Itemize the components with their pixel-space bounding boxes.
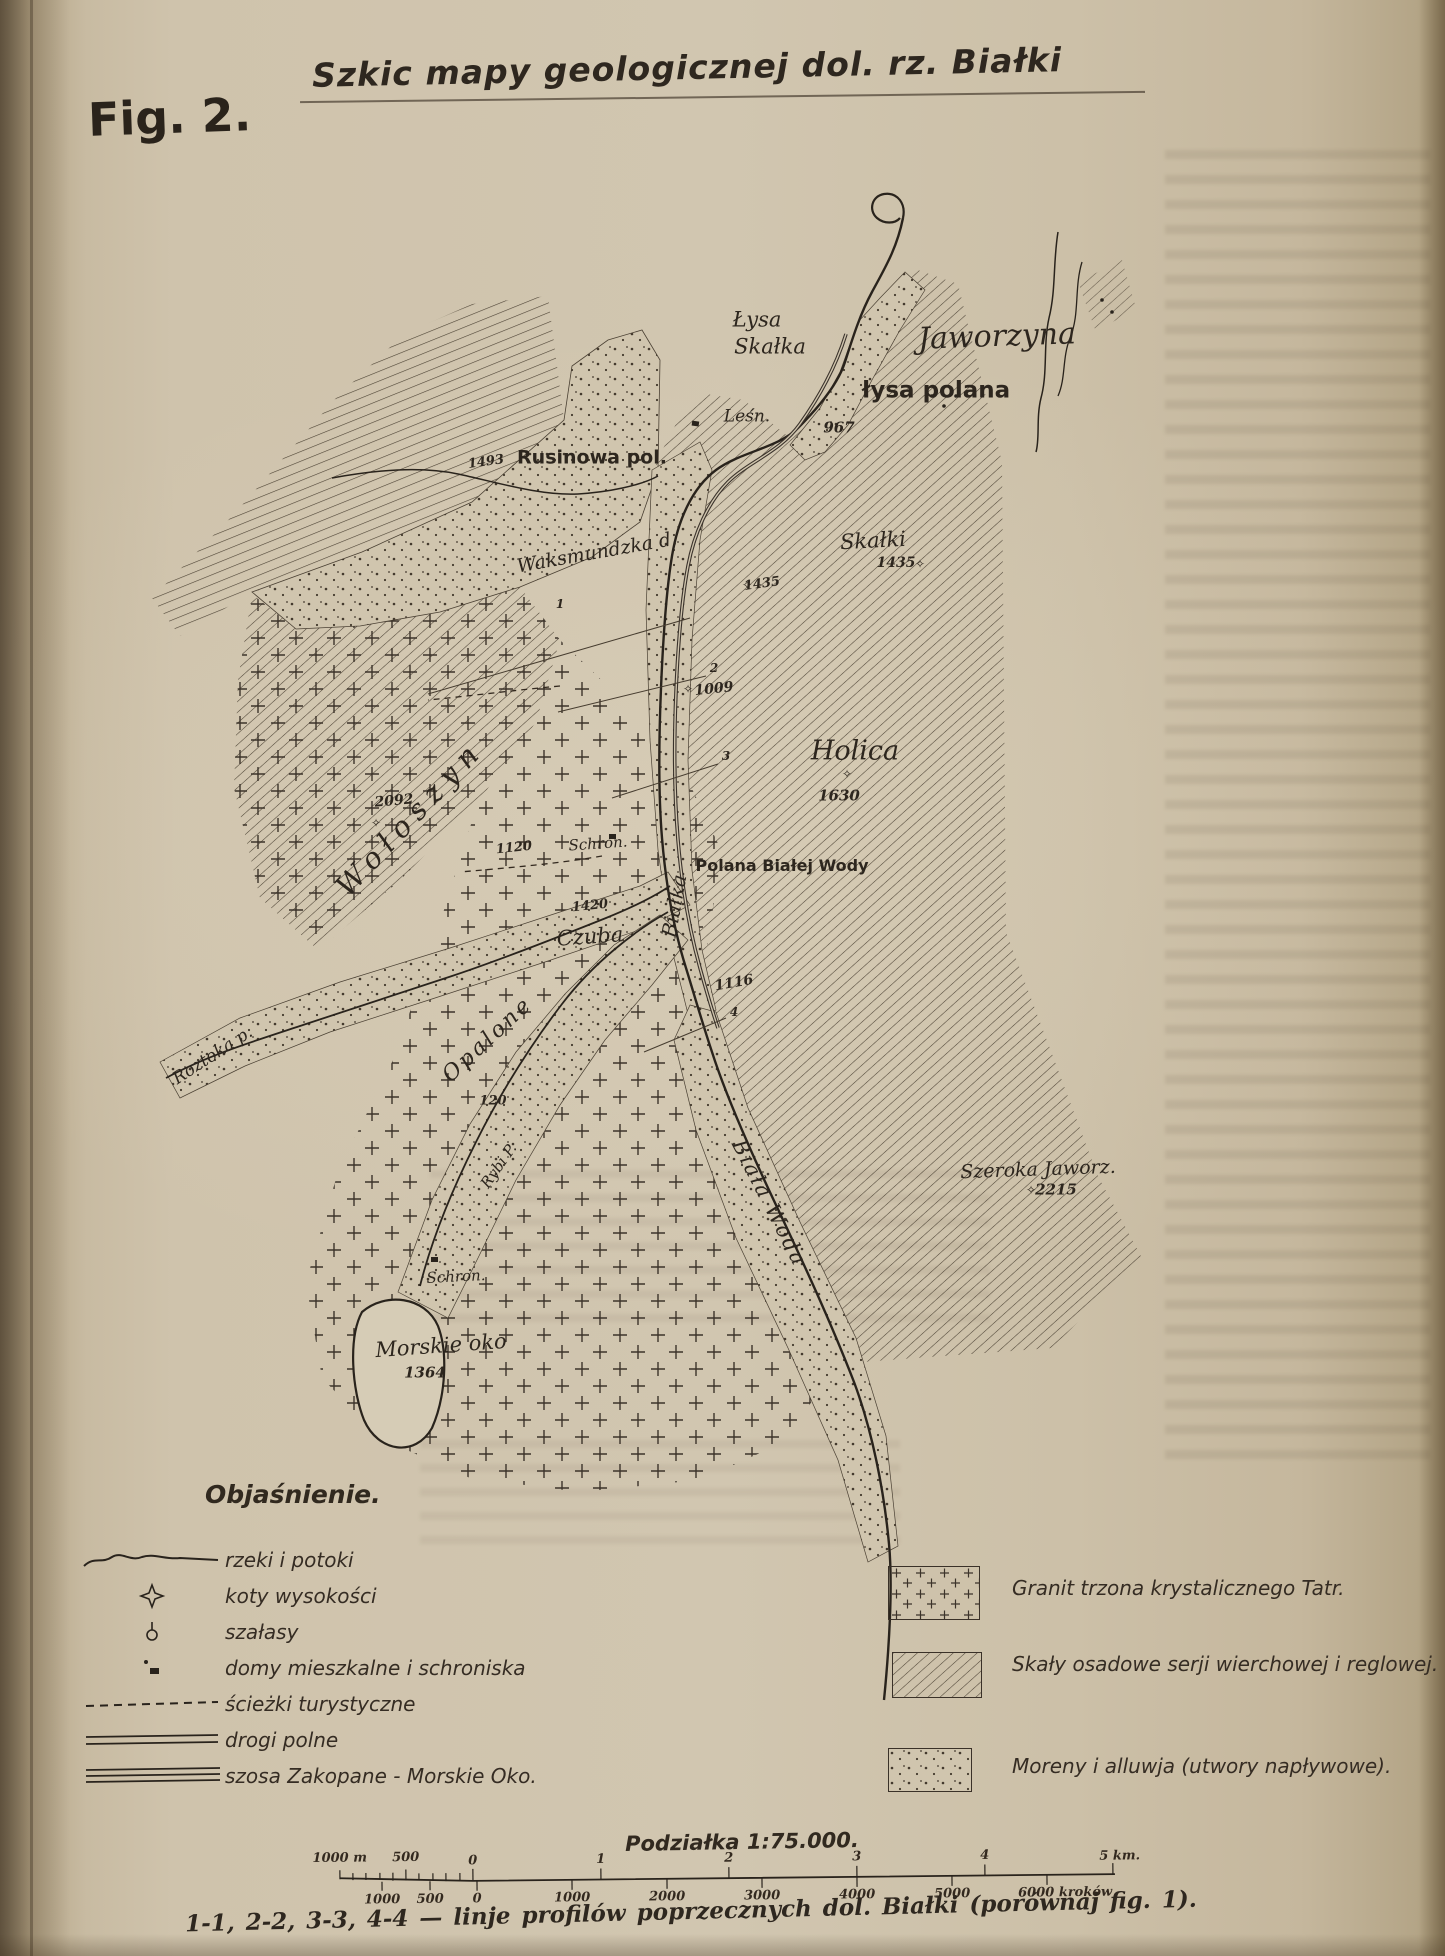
map-label-lysa: Łysa [733, 310, 782, 331]
legend-row-elevations: koty wysokości [80, 1582, 377, 1610]
map-region-sedimentary-jaworzyna-patch [1078, 260, 1136, 332]
elevation-marker-icon: ✧ [1026, 1184, 1036, 1196]
hamlet-dot-icon [1100, 298, 1104, 302]
map-label-1009: 1009 [694, 680, 734, 698]
legend-item-label: rzeki i potoki [225, 1548, 354, 1572]
double-line-icon [80, 1726, 225, 1754]
shelter-circle-icon [80, 1618, 225, 1646]
legend-row-highway: szosa Zakopane - Morskie Oko. [80, 1762, 537, 1790]
scale-tick: 1 [596, 1852, 605, 1867]
map-label-1364: 1364 [404, 1366, 446, 1381]
elevation-marker-icon: ✧ [683, 683, 693, 695]
map-label-polana-bialej-wody: Polana Białej Wody [695, 858, 868, 874]
scale-tick: 4 [980, 1848, 989, 1863]
legend-item-label: drogi polne [225, 1728, 338, 1752]
geology-label-moraines: Moreny i alluwja (utwory napływowe). [1012, 1754, 1442, 1779]
profile-marker-4: 4 [730, 1006, 738, 1018]
legend-item-label: koty wysokości [225, 1584, 377, 1608]
river-source-hook [872, 194, 904, 223]
map-label-1435-a: 1435 [877, 556, 916, 570]
map-label-holica: Holica [811, 738, 899, 765]
map-label-rusinowa: Rusinowa pol. [517, 449, 667, 468]
scanned-page: Fig. 2. Szkic mapy geologicznej dol. rz.… [0, 0, 1445, 1956]
map-label-120: 120 [479, 1095, 506, 1108]
legend-item-label: ścieżki turystyczne [225, 1692, 415, 1716]
legend-row-paths: ścieżki turystyczne [80, 1690, 415, 1718]
granite-pattern-box [888, 1566, 980, 1620]
hamlet-dot-icon [942, 404, 946, 408]
map-label-1420: 1420 [571, 898, 608, 915]
geology-label-granite: Granit trzona krystalicznego Tatr. [1012, 1576, 1442, 1601]
map-label-lysa-polana: łysa polana [862, 380, 1010, 403]
geology-label-sedimentary: Skały osadowe serji wierchowej i reglowe… [1012, 1652, 1442, 1677]
map-label-2092: 2092 [374, 792, 414, 809]
elevation-diamond-icon [80, 1582, 225, 1610]
scale-tick: 500 [392, 1850, 419, 1865]
map-label-1120: 1120 [495, 840, 532, 857]
legend-item-label: szosa Zakopane - Morskie Oko. [225, 1764, 537, 1788]
hamlet-dot-icon [1110, 310, 1114, 314]
map-label-lesn: Leśn. [724, 409, 770, 426]
map-label-skalki: Skałki [840, 529, 907, 553]
legend-item-label: szałasy [225, 1620, 298, 1644]
elevation-marker-icon: ✧ [842, 768, 852, 780]
elevation-marker-icon: ✧ [371, 817, 381, 829]
map-label-schron-2: Schron. [426, 1268, 486, 1286]
scale-tick: 3 [852, 1849, 861, 1864]
moraine-pattern-box [888, 1748, 972, 1792]
triple-line-icon [80, 1762, 225, 1790]
legend-row-rivers: rzeki i potoki [80, 1546, 354, 1574]
map-label-967: 967 [823, 421, 854, 436]
legend-heading: Objaśnienie. [205, 1480, 381, 1509]
scale-tick: 1000 m [312, 1850, 367, 1866]
scale-tick: 2 [724, 1851, 733, 1866]
legend-row-houses: domy mieszkalne i schroniska [80, 1654, 526, 1682]
map-label-jaworzyna: Jaworzyna [918, 319, 1077, 354]
map-label-1630: 1630 [818, 789, 860, 804]
building-icon [692, 421, 700, 427]
map-label-2215: 2215 [1035, 1183, 1077, 1198]
legend-row-shelters: szałasy [80, 1618, 298, 1646]
house-square-icon [80, 1654, 225, 1682]
scale-tick: 5 km. [1099, 1848, 1140, 1863]
river-squiggle-icon [80, 1546, 225, 1574]
map-label-schron-1: Schron. [568, 834, 628, 853]
legend-row-field-roads: drogi polne [80, 1726, 338, 1754]
sedimentary-pattern-box [892, 1652, 982, 1698]
dashed-line-icon [80, 1690, 225, 1718]
scale-tick: 0 [468, 1853, 477, 1868]
map-label-szeroka-jaworz: Szeroka Jaworz. [960, 1158, 1116, 1182]
map-label-czuba: Czuba [556, 924, 624, 950]
building-icon [431, 1257, 438, 1262]
profile-marker-1: 1 [556, 598, 564, 610]
elevation-marker-icon: ✧ [742, 579, 752, 591]
profile-marker-3: 3 [722, 750, 730, 762]
elevation-marker-icon: ✧ [915, 558, 925, 570]
map-label-skalka: Skałka [734, 337, 806, 358]
profile-marker-2: 2 [710, 662, 718, 674]
legend-item-label: domy mieszkalne i schroniska [225, 1656, 526, 1680]
